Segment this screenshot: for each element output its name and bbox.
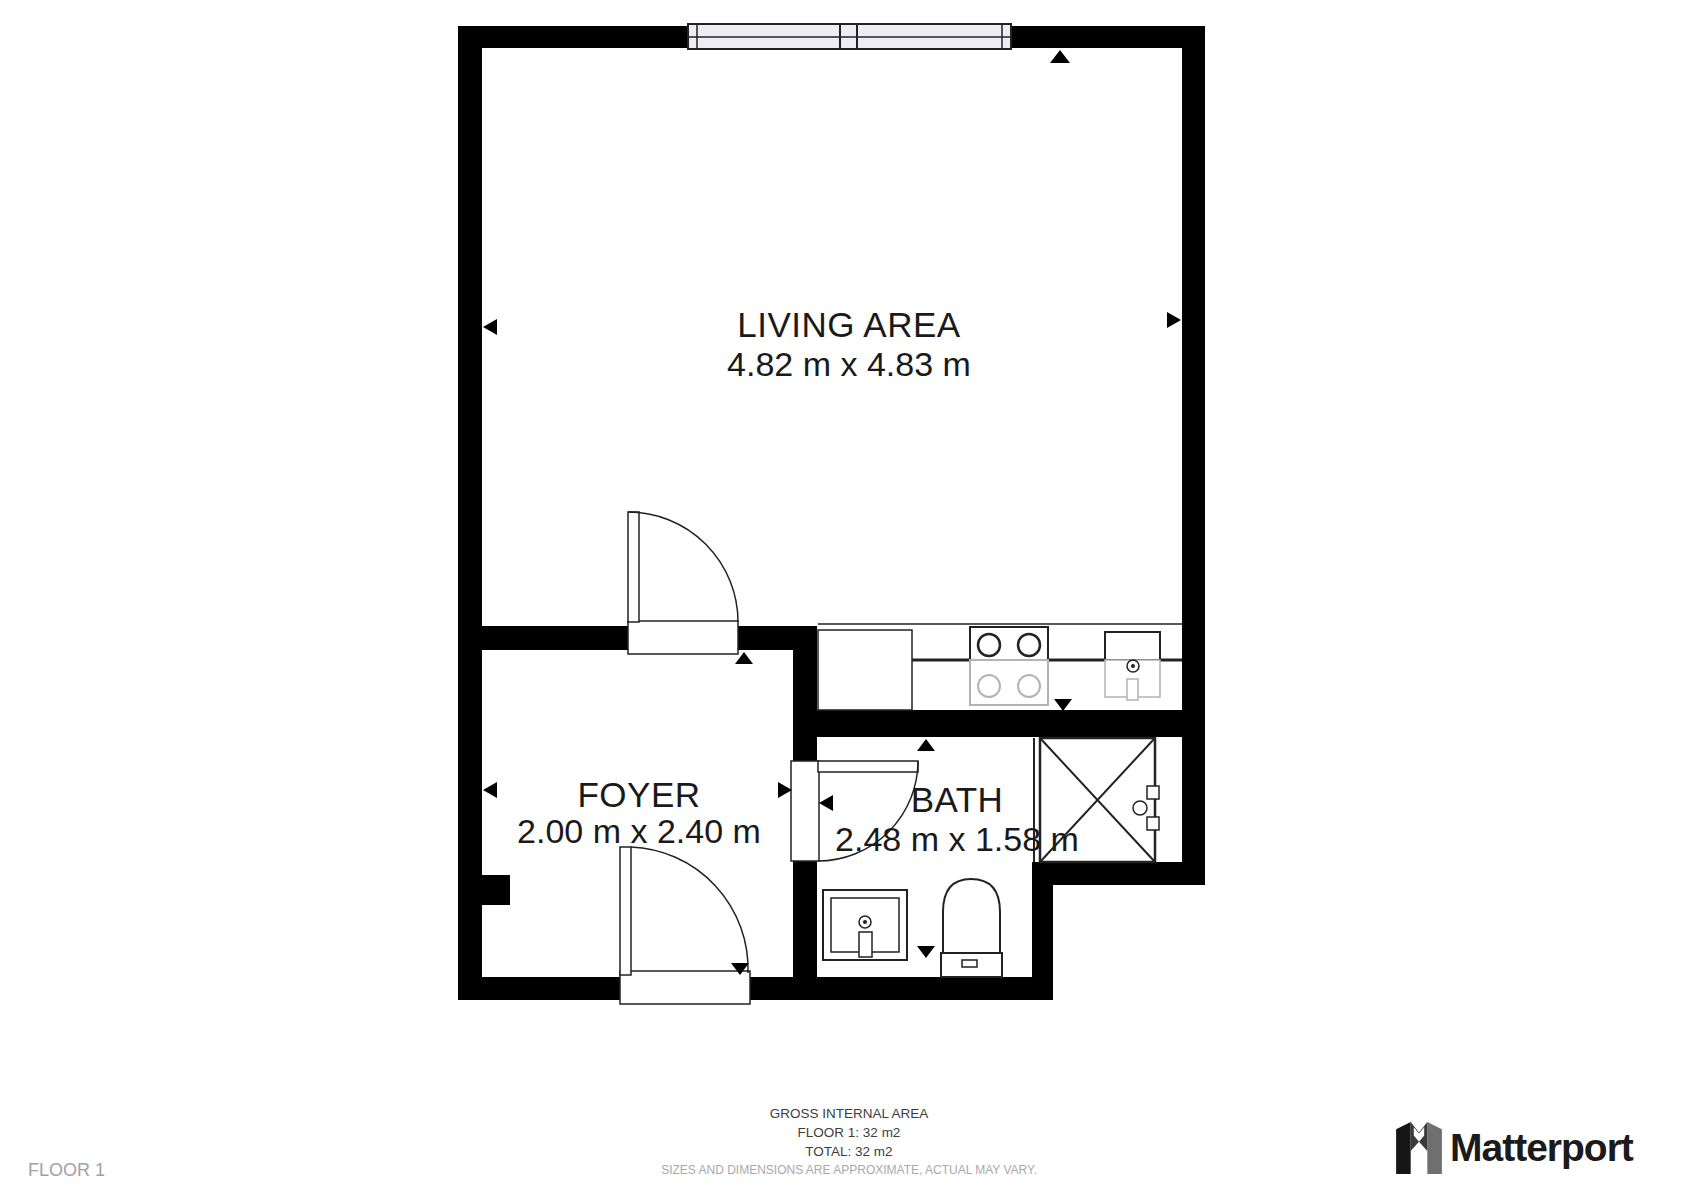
wall-living-foyer-right (738, 626, 817, 650)
living-area-dimensions: 4.82 m x 4.83 m (727, 345, 971, 384)
floorplan-drawing (0, 0, 1698, 1200)
wall-right (1182, 26, 1205, 885)
wall-step-vertical (1032, 862, 1053, 1000)
floor-tag: FLOOR 1 (28, 1160, 105, 1181)
door-swing-icon (818, 761, 918, 772)
matterport-logo-icon (1396, 1122, 1442, 1174)
wall-bottom (458, 977, 1053, 1000)
gross-internal-area-title: GROSS INTERNAL AREA (0, 1104, 1698, 1123)
door-swing-icon (628, 512, 639, 622)
kitchen-sink-icon (1105, 632, 1160, 700)
door-living-foyer (628, 512, 738, 654)
door-foyer-entry (620, 847, 750, 1004)
wall-kitchen-bath (793, 710, 1182, 737)
living-area-label: LIVING AREA (737, 305, 960, 345)
matterport-brand: Matterport (1396, 1122, 1633, 1174)
kitchen-cabinet (818, 630, 912, 710)
camera-marker-icon (1054, 699, 1072, 711)
bath-label: BATH (911, 780, 1004, 820)
camera-marker-icon (917, 739, 935, 751)
window-icon (688, 24, 1011, 49)
wall-living-foyer-left (482, 626, 628, 650)
camera-marker-icon (819, 795, 833, 811)
camera-marker-icon (483, 319, 497, 335)
toilet-icon (941, 879, 1002, 977)
stove-icon (970, 627, 1048, 705)
wall-pier (482, 875, 510, 905)
foyer-dimensions: 2.00 m x 2.40 m (517, 812, 761, 851)
bath-dimensions: 2.48 m x 1.58 m (835, 820, 1079, 859)
camera-marker-icon (917, 946, 935, 958)
camera-marker-icon (778, 782, 792, 798)
wall-step-horizontal (1032, 862, 1205, 885)
foyer-label: FOYER (577, 775, 700, 815)
wall-left (458, 26, 482, 1000)
camera-marker-icon (1050, 50, 1070, 63)
bath-sink-icon (823, 890, 907, 960)
matterport-wordmark: Matterport (1450, 1126, 1633, 1170)
camera-marker-icon (1167, 312, 1181, 328)
camera-marker-icon (483, 782, 497, 798)
floorplan-page: LIVING AREA 4.82 m x 4.83 m FOYER 2.00 m… (0, 0, 1698, 1200)
door-swing-icon (620, 847, 631, 975)
